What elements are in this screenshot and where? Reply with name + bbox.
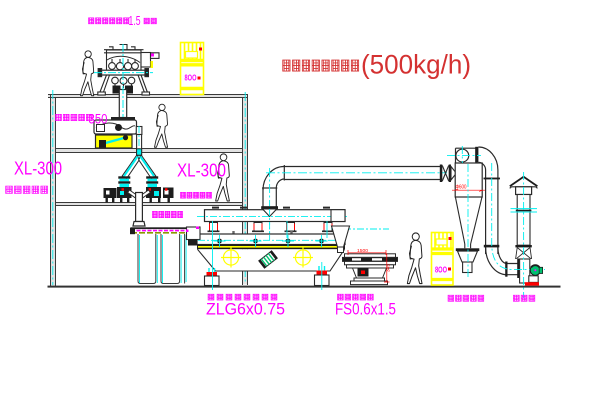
svg-text:1500: 1500 bbox=[357, 248, 368, 254]
svg-text:ZLG6x0.75: ZLG6x0.75 bbox=[206, 300, 285, 319]
svg-text:XL-300: XL-300 bbox=[14, 159, 62, 179]
svg-text:350: 350 bbox=[89, 111, 108, 127]
svg-text:345: 345 bbox=[386, 264, 392, 272]
svg-text:FS0.6x1.5: FS0.6x1.5 bbox=[335, 300, 396, 319]
svg-text:XL-300: XL-300 bbox=[177, 161, 226, 181]
svg-text:1.5: 1.5 bbox=[129, 14, 141, 28]
svg-text:(500kg/h): (500kg/h) bbox=[361, 50, 471, 80]
svg-text:8OO: 8OO bbox=[185, 73, 197, 83]
svg-text:8OO: 8OO bbox=[435, 265, 447, 275]
